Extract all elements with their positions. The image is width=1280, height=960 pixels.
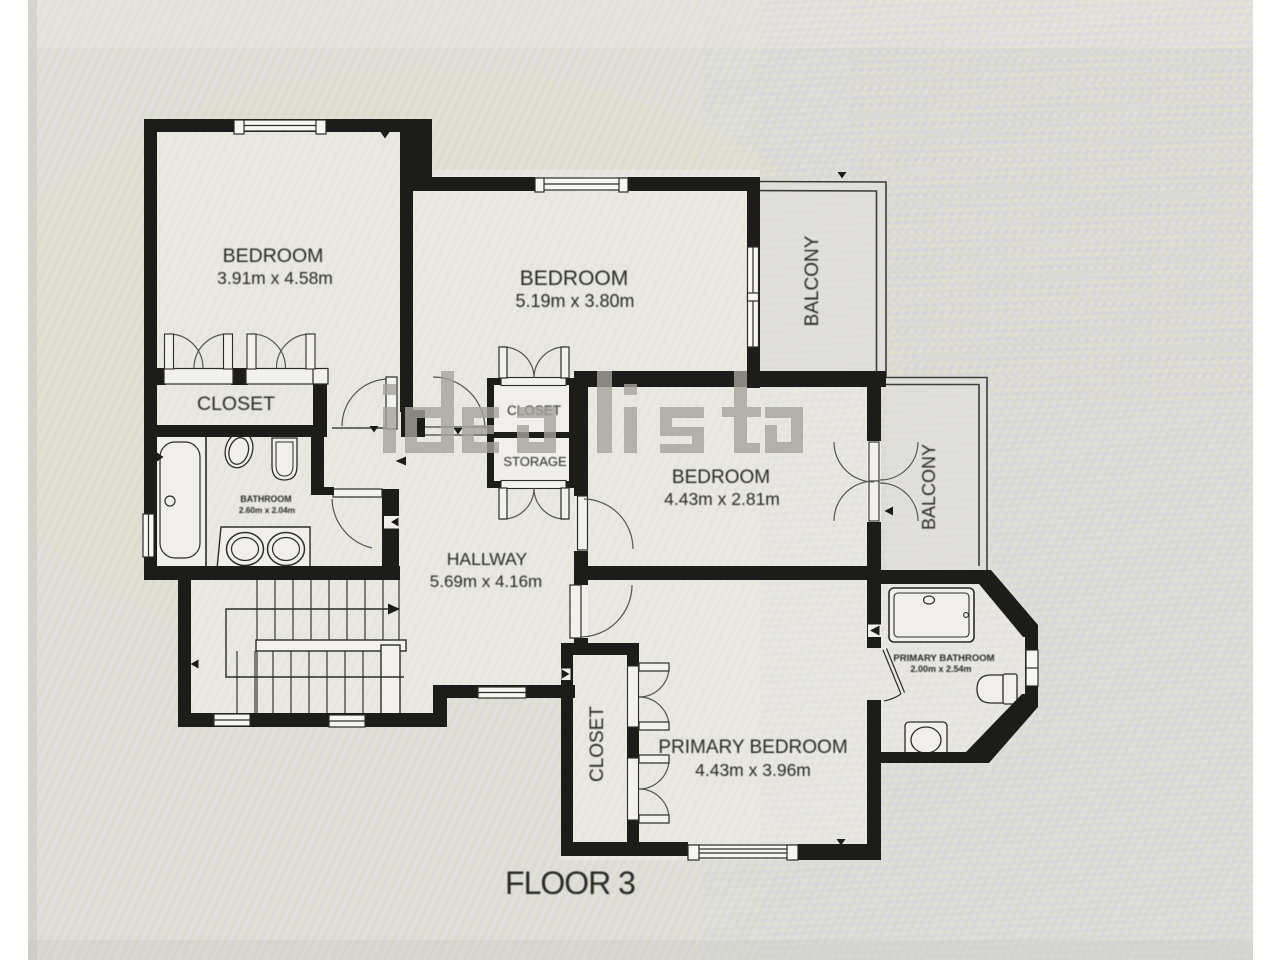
svg-text:4.43m x 2.81m: 4.43m x 2.81m bbox=[664, 489, 780, 509]
svg-text:5.69m x 4.16m: 5.69m x 4.16m bbox=[430, 572, 542, 591]
svg-text:BEDROOM: BEDROOM bbox=[672, 467, 770, 488]
svg-text:HALLWAY: HALLWAY bbox=[447, 549, 528, 569]
svg-text:4.43m x 3.96m: 4.43m x 3.96m bbox=[695, 760, 811, 780]
svg-text:BALCONY: BALCONY bbox=[919, 444, 939, 530]
svg-text:PRIMARY BATHROOM: PRIMARY BATHROOM bbox=[893, 653, 994, 664]
svg-text:BEDROOM: BEDROOM bbox=[223, 245, 324, 267]
svg-text:CLOSET: CLOSET bbox=[197, 393, 275, 415]
svg-text:5.19m x 3.80m: 5.19m x 3.80m bbox=[515, 291, 634, 311]
svg-text:2.00m x 2.54m: 2.00m x 2.54m bbox=[910, 664, 971, 674]
svg-text:PRIMARY BEDROOM: PRIMARY BEDROOM bbox=[658, 737, 847, 758]
svg-text:BEDROOM: BEDROOM bbox=[520, 267, 629, 290]
svg-text:BATHROOM: BATHROOM bbox=[240, 494, 291, 504]
svg-text:BALCONY: BALCONY bbox=[802, 235, 823, 326]
svg-text:3.91m x 4.58m: 3.91m x 4.58m bbox=[217, 268, 333, 288]
svg-text:2.60m x 2.04m: 2.60m x 2.04m bbox=[239, 505, 295, 515]
svg-text:CLOSET: CLOSET bbox=[587, 706, 608, 782]
svg-text:FLOOR 3: FLOOR 3 bbox=[505, 865, 635, 901]
svg-text:STORAGE: STORAGE bbox=[503, 454, 567, 469]
